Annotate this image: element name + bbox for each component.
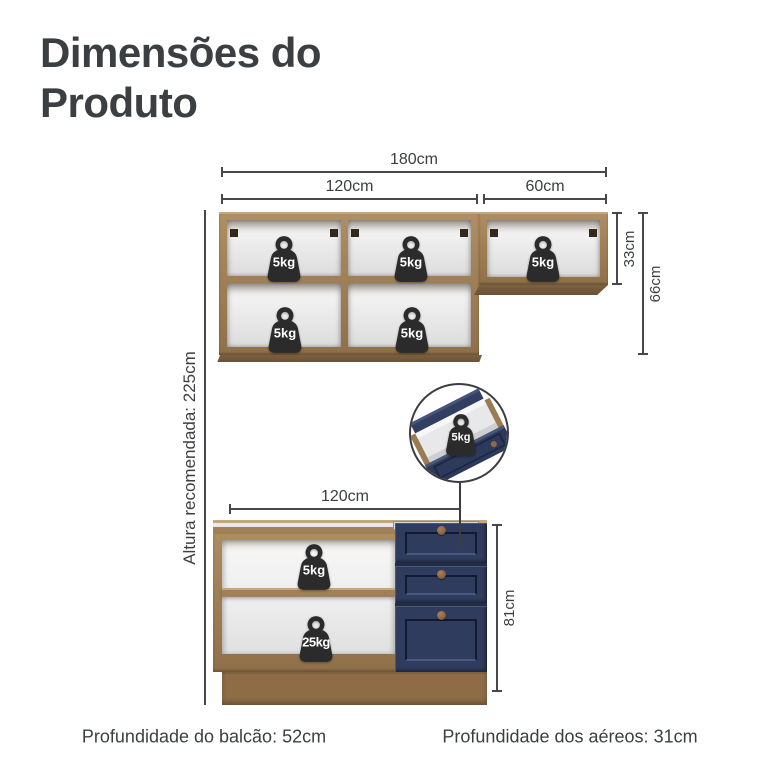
dim-right-width: 60cm — [483, 178, 607, 200]
weight-label: 25kg — [294, 635, 338, 648]
weight-25kg-icon: 25kg — [294, 615, 338, 663]
dim-left-height-line — [642, 212, 644, 355]
dim-recommended-height-label: Altura recomendada: 225cm — [180, 351, 200, 565]
aerial-depth-label: Profundidade dos aéreos: 31cm — [442, 727, 697, 748]
dim-left-width: 120cm — [221, 178, 478, 200]
dim-base-width: 120cm — [229, 488, 461, 510]
dim-right-height-line — [616, 212, 618, 285]
base-cabinet — [213, 520, 487, 672]
drawer-front-top — [395, 523, 487, 563]
weight-label: 5kg — [390, 326, 434, 339]
dim-left-height: 66cm — [642, 212, 644, 355]
dim-base-width-line — [229, 508, 461, 510]
weight-label: 5kg — [292, 563, 336, 576]
callout-connector-line — [459, 483, 461, 550]
drawer-knob — [437, 611, 446, 620]
dim-left-width-line — [221, 198, 478, 200]
weight-label: 5kg — [389, 255, 433, 268]
dim-right-height: 33cm — [616, 212, 618, 285]
page-title: Dimensões do Produto — [40, 28, 321, 128]
upper-left-bottom-edge — [216, 355, 482, 362]
dim-recommended-height: Altura recomendada: 225cm — [204, 210, 206, 705]
weight-5kg-icon: 5kg — [390, 306, 434, 354]
dim-total-width-label: 180cm — [221, 151, 607, 168]
dim-total-width: 180cm — [221, 151, 607, 173]
drawer-callout-circle: 5kg — [409, 383, 509, 483]
upper-cabinet-left-section — [219, 212, 479, 355]
counter-depth-label: Profundidade do balcão: 52cm — [82, 727, 326, 748]
dim-base-height-line — [496, 524, 498, 692]
weight-label: 5kg — [262, 255, 306, 268]
dim-right-width-line — [483, 198, 607, 200]
weight-label: 5kg — [521, 255, 565, 268]
weight-label: 5kg — [441, 432, 481, 443]
dim-right-height-label: 33cm — [621, 230, 638, 267]
product-dimensions-diagram: Dimensões do Produto 180cm 120cm 60cm 5k… — [0, 0, 780, 780]
dim-left-height-label: 66cm — [647, 265, 664, 302]
dim-base-height-label: 81cm — [501, 590, 518, 627]
dim-right-width-label: 60cm — [483, 178, 607, 195]
door-front-bottom — [395, 606, 487, 672]
weight-5kg-icon: 5kg — [389, 235, 433, 283]
dim-base-width-label: 120cm — [229, 488, 461, 505]
base-plinth — [222, 672, 487, 705]
dim-left-width-label: 120cm — [221, 178, 478, 195]
weight-5kg-icon: 5kg — [292, 543, 336, 591]
dim-total-width-line — [221, 171, 607, 173]
drawer-front-middle — [395, 566, 487, 603]
drawer-stack — [395, 523, 487, 672]
dim-recommended-height-line — [204, 210, 206, 705]
drawer-knob — [437, 570, 446, 579]
drawer-knob — [437, 526, 446, 535]
weight-label: 5kg — [263, 326, 307, 339]
weight-5kg-icon: 5kg — [263, 306, 307, 354]
weight-5kg-icon: 5kg — [441, 413, 481, 457]
weight-5kg-icon: 5kg — [262, 235, 306, 283]
upper-right-bottom-edge — [474, 285, 608, 295]
weight-5kg-icon: 5kg — [521, 235, 565, 283]
page-title-line2: Produto — [40, 78, 321, 128]
dim-base-height: 81cm — [496, 524, 498, 692]
page-title-line1: Dimensões do — [40, 28, 321, 78]
